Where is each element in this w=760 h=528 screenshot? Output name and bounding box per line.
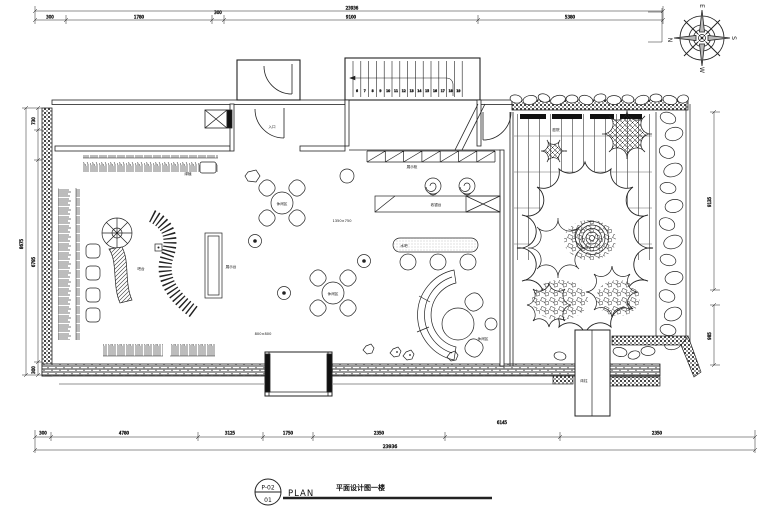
dim-bottom-seg: 6145 (497, 420, 508, 425)
title-block: P-02 01 PLAN 平面设计图一楼 (255, 479, 492, 505)
left-exterior-wall (42, 108, 52, 376)
plant-row-top (83, 155, 218, 172)
floor-plan-canvas: 6 7 8 9 10 11 12 13 14 15 16 17 18 19 (0, 0, 760, 528)
round-fan-display (102, 218, 132, 248)
bottom-wall (42, 364, 660, 376)
label-lounge: 休闲区 (478, 336, 489, 341)
fin-screen (152, 216, 194, 312)
dim-top: 23936 300 1780 300 9100 5380 (33, 6, 665, 25)
compass-letter-right: S (730, 36, 737, 40)
dim-left-overall: 8675 (19, 238, 24, 249)
plant-pot-a (245, 170, 260, 182)
pedestal-dot (158, 247, 160, 249)
dim-bottom-seg: 1750 (283, 431, 294, 436)
dim-top-seg: 5380 (565, 15, 576, 20)
stair-number: 16 (433, 89, 437, 93)
label-spec-a: 1350×750 (332, 219, 352, 223)
stair-number: 19 (456, 89, 460, 93)
sheet-code: P-02 (261, 485, 274, 492)
compass-letter-left: N (666, 38, 673, 43)
floor-plan-sheet: 6 7 8 9 10 11 12 13 14 15 16 17 18 19 (0, 0, 760, 528)
dim-top-seg: 1780 (134, 15, 145, 20)
leaf-cluster-c (596, 280, 640, 316)
label-leisure-a: 休闲区 (277, 201, 288, 206)
dim-top-overall: 23936 (346, 6, 359, 11)
stair-number: 12 (402, 89, 406, 93)
dim-left-seg: 300 (31, 366, 36, 374)
leaf-cluster-b (532, 280, 588, 320)
dim-top-seg: 9100 (346, 15, 357, 20)
plant-row-bottom-a (103, 344, 163, 360)
dense-tree (602, 109, 652, 159)
stair-wall-right (477, 100, 481, 146)
dim-bottom-overall: 23936 (383, 444, 398, 450)
corridor-door (255, 108, 284, 138)
label-spec-b: 800×800 (255, 332, 272, 336)
furniture-layer (58, 151, 500, 361)
dim-bottom-seg: 2350 (374, 431, 385, 436)
hall-right-door (483, 112, 511, 140)
interior-partition (500, 150, 504, 366)
dim-bottom-seg: 4780 (119, 431, 130, 436)
label-cashier: 收银台 (431, 202, 442, 207)
dim-top-seg: 300 (46, 15, 54, 20)
label-bar: 吧台 (137, 266, 145, 271)
dim-left-seg: 730 (31, 117, 36, 125)
stair-number: 15 (425, 89, 429, 93)
stair-wall-left (345, 100, 349, 146)
detail-number: 01 (264, 497, 272, 504)
display-cabinets (367, 151, 495, 162)
dim-right-lower: 985 (707, 332, 712, 340)
stair-number: 6 (356, 89, 358, 93)
entry-vestibule (265, 352, 332, 396)
dim-bottom-seg: 300 (39, 431, 47, 436)
stair-number: 9 (379, 89, 381, 93)
compass-letter-bottom: W (698, 67, 705, 73)
stair-number: 17 (441, 89, 445, 93)
compass-points (674, 10, 730, 66)
bar-stools (86, 244, 100, 322)
swivel-chairs (425, 178, 475, 195)
stair-number: 11 (394, 89, 398, 93)
stair-number: 13 (410, 89, 414, 93)
dim-bracket (648, 8, 662, 42)
compass-letter-top: E (698, 4, 705, 8)
stair-number: 8 (372, 89, 374, 93)
round-stools (249, 235, 371, 300)
drawing-title: 平面设计图一楼 (336, 483, 385, 492)
garden-fence-line (510, 112, 513, 366)
label-entrance: 入口 (268, 124, 276, 129)
label-display-table: 展示台 (226, 264, 237, 269)
plant-row-left (58, 188, 80, 340)
display-table (205, 233, 222, 298)
dim-top-seg: 300 (214, 10, 222, 15)
top-wall-right (480, 100, 512, 105)
dim-right-upper: 9135 (707, 196, 712, 207)
bench-group (393, 238, 478, 270)
stair-number: 14 (417, 89, 421, 93)
label-courtyard: 庭院 (552, 127, 560, 132)
stair-number: 10 (386, 89, 390, 93)
label-plants: 绿植 (184, 171, 192, 176)
corridor-wall-b (300, 146, 345, 151)
dim-bottom: 300 4780 3125 1750 2350 6145 2350 23936 (33, 420, 757, 453)
label-water-bar: 水吧 (400, 243, 408, 248)
corridor-wall-a (55, 146, 230, 151)
label-leisure-b: 休闲区 (328, 291, 339, 296)
dim-bottom-seg: 3125 (225, 431, 236, 436)
plant-row-bottom-b (170, 344, 215, 360)
label-shelving: 展示柜 (407, 164, 418, 169)
rock-chain-right (657, 110, 684, 351)
column-box (205, 110, 232, 128)
label-pier: 砖柱 (580, 378, 588, 383)
stair-number: 7 (364, 89, 366, 93)
dim-right: 9135 985 (707, 110, 720, 367)
top-wall-left (52, 100, 345, 105)
dim-left: 730 6795 300 8675 (19, 106, 42, 377)
plant-pot-b (340, 169, 354, 183)
compass-rose: E N S W (666, 4, 737, 73)
pier (575, 330, 610, 416)
stair-block (345, 58, 480, 100)
side-table (200, 162, 216, 173)
bar-counter (109, 247, 132, 303)
stair-number: 18 (449, 89, 453, 93)
dim-left-seg: 6795 (31, 256, 36, 267)
dim-bottom-seg: 2350 (652, 431, 663, 436)
